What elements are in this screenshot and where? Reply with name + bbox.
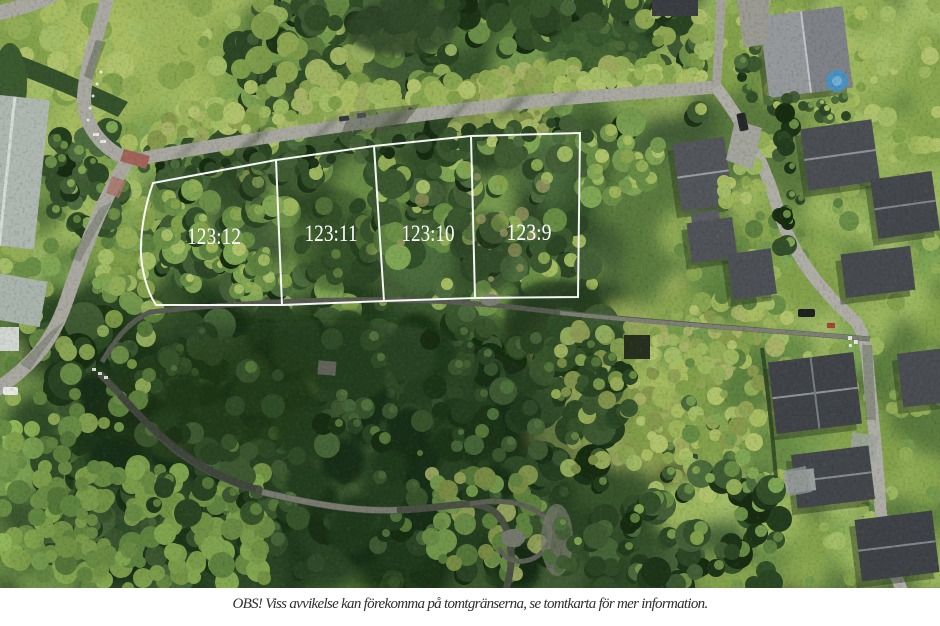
svg-text:123:10: 123:10 bbox=[402, 221, 455, 247]
svg-text:123:9: 123:9 bbox=[507, 220, 552, 246]
svg-text:123:11: 123:11 bbox=[305, 221, 358, 247]
svg-text:123:12: 123:12 bbox=[187, 224, 241, 250]
